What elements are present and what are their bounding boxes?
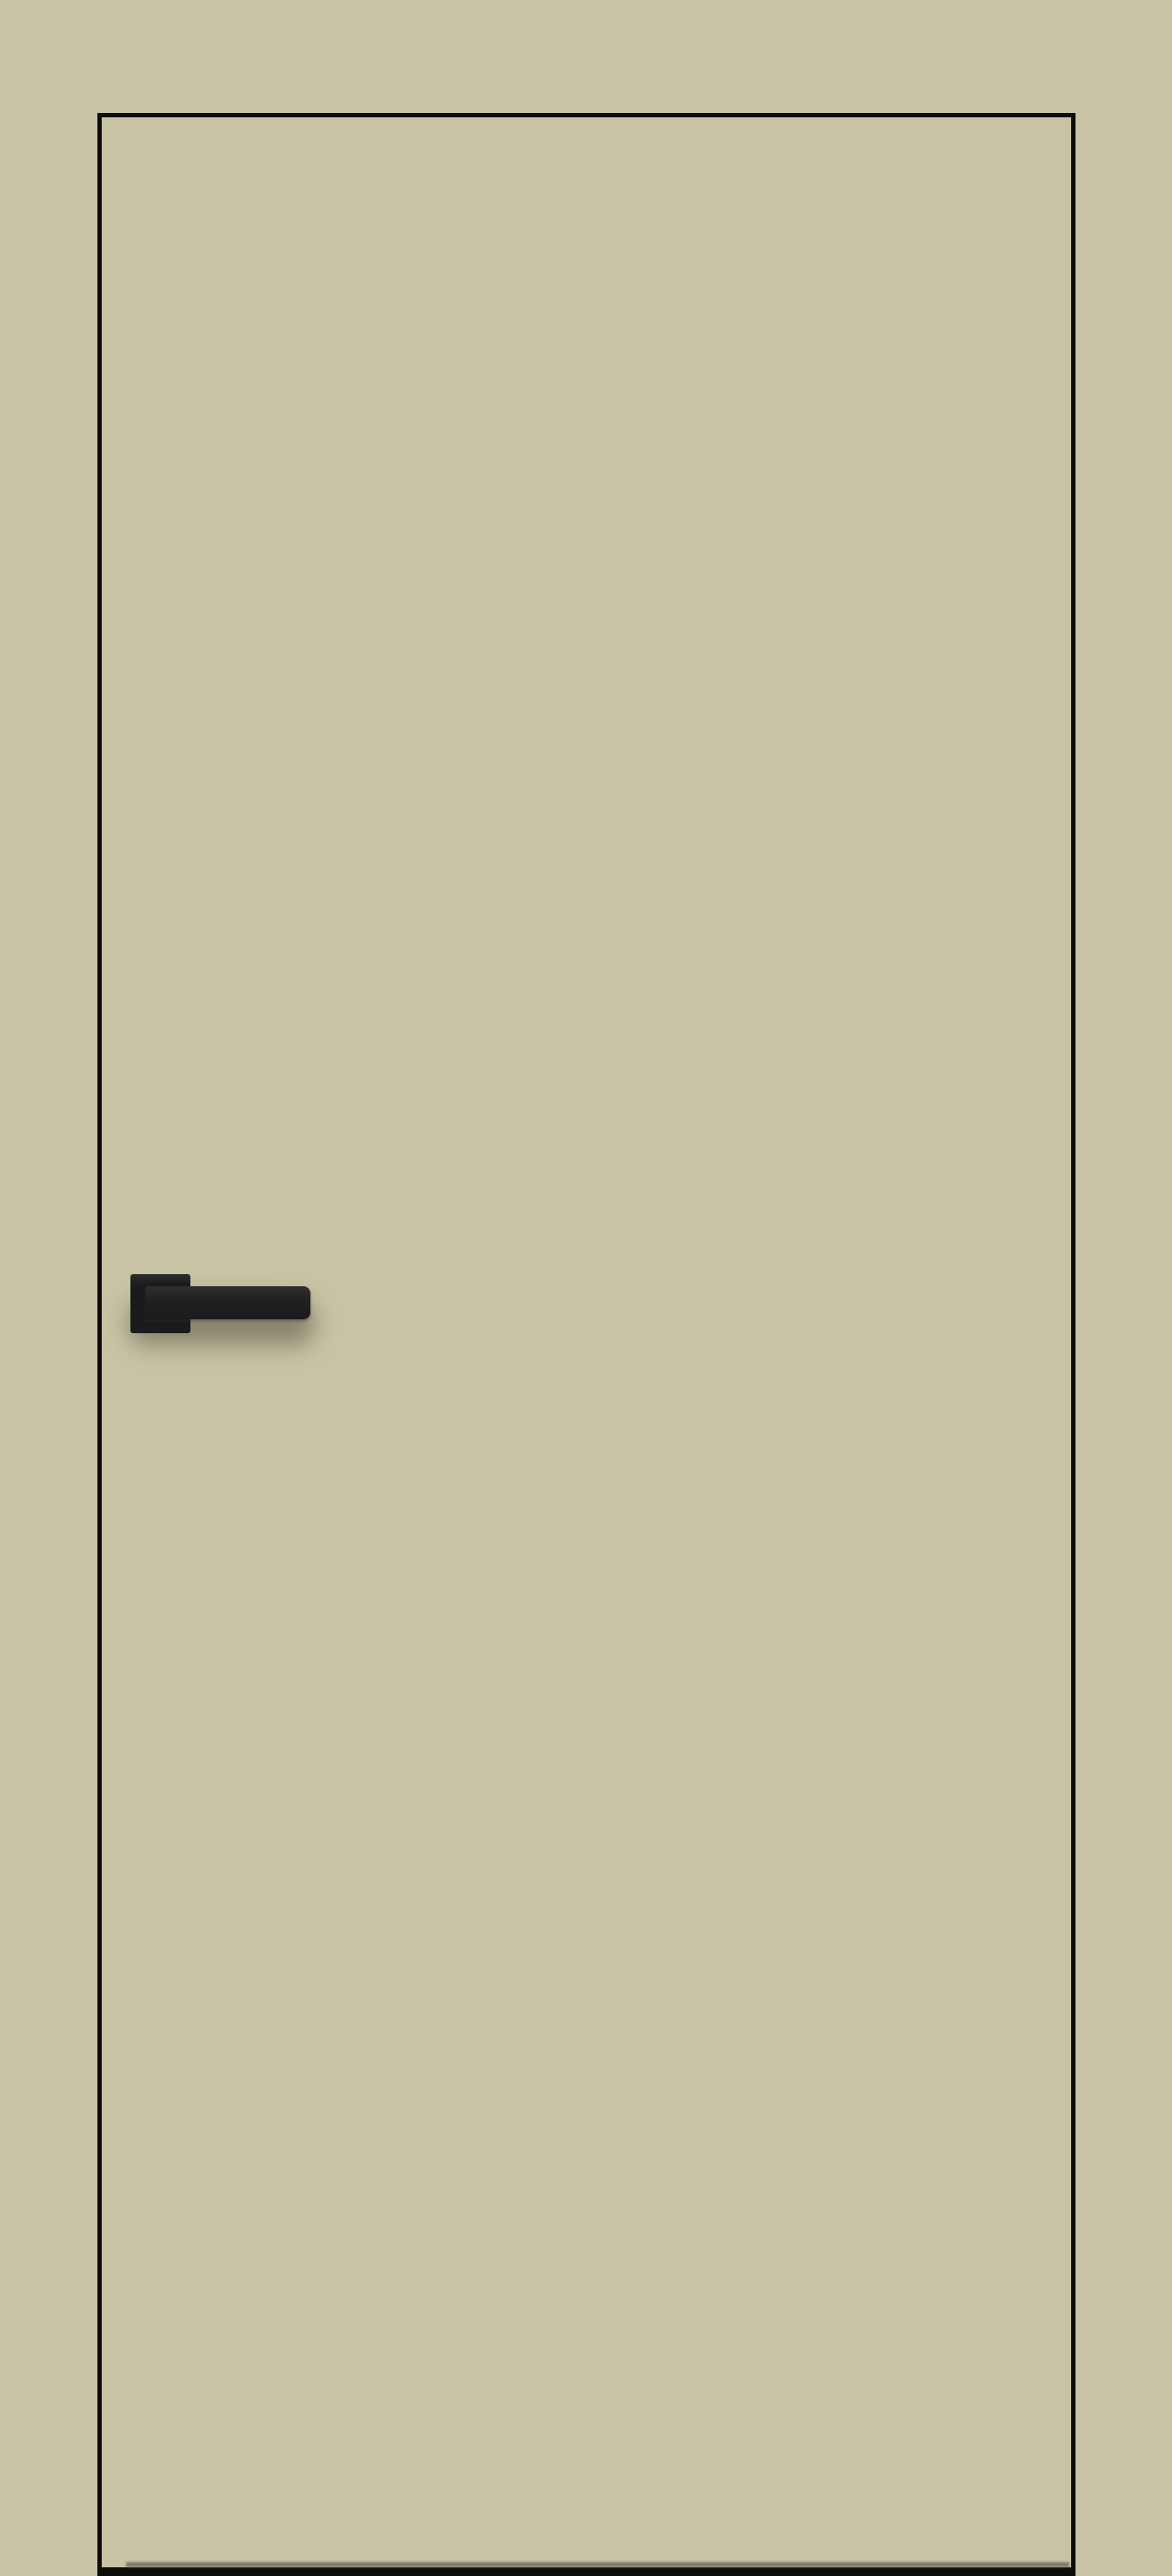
page-background [0, 0, 1172, 2576]
handle-lever [145, 1286, 310, 1319]
